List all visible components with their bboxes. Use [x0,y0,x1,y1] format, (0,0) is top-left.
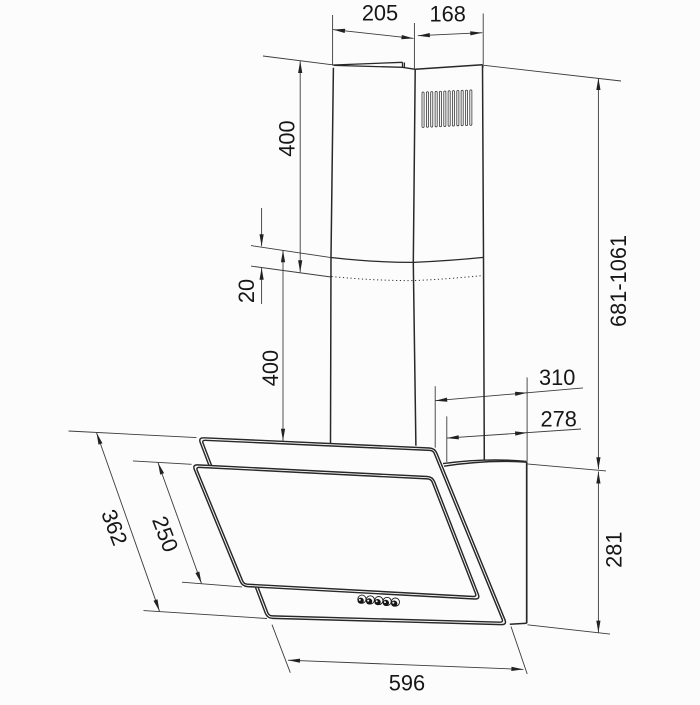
svg-text:205: 205 [362,1,398,26]
svg-text:168: 168 [430,2,466,27]
svg-text:681-1061: 681-1061 [606,235,631,327]
svg-text:281: 281 [601,532,626,568]
svg-text:20: 20 [234,279,259,303]
svg-text:596: 596 [389,671,425,696]
svg-text:310: 310 [539,365,575,390]
svg-text:278: 278 [541,406,577,431]
svg-text:400: 400 [258,350,283,386]
svg-text:400: 400 [275,120,300,156]
